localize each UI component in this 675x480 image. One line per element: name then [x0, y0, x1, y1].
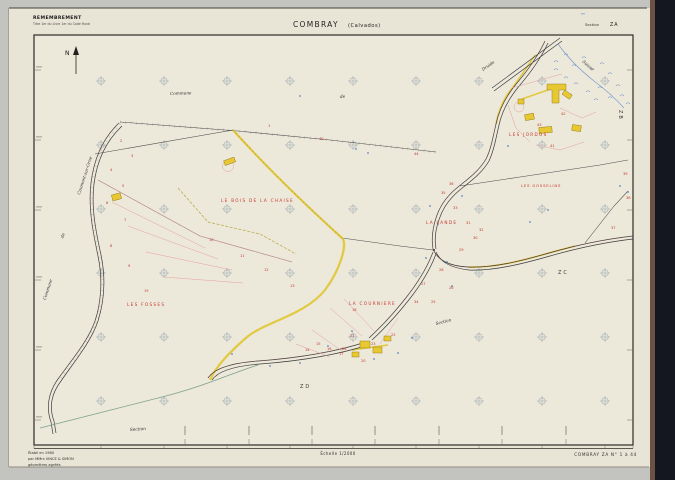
- doc-type-sublabel: Titre 1er du Livre 1er du Code Rural: [32, 22, 90, 26]
- parcel-number: 34: [414, 300, 419, 304]
- parcel-number: 13: [290, 284, 295, 288]
- parcel-number: 12: [264, 268, 269, 272]
- parcel-number: 5: [122, 184, 124, 188]
- parcel-number: 22: [391, 333, 396, 337]
- credit-line-1: Établi en 1980: [28, 450, 55, 455]
- blue-speck: [581, 13, 585, 14]
- parcel-number: 31: [466, 221, 471, 225]
- sheet-reference: COMBRAY ZA N° 1 à 44: [574, 452, 637, 457]
- credit-line-3: géomètres agréés: [28, 463, 61, 467]
- sheet-title-department: (Calvados): [348, 23, 381, 29]
- section-value: ZA: [610, 22, 619, 28]
- lieu-dit-la-lande: LA LANDE: [426, 220, 457, 225]
- map-svg: REMEMBREMENT Titre 1er du Livre 1er du C…: [0, 0, 675, 480]
- parcel-number: 18: [352, 308, 357, 312]
- parcel-number: 36: [449, 182, 454, 186]
- parcel-number: 35: [441, 191, 446, 195]
- parcel-number: 28: [439, 268, 444, 272]
- label-de-top: de: [340, 94, 346, 99]
- adjacent-section-zc: ZC: [558, 270, 569, 276]
- parcel-number: 39: [623, 172, 628, 176]
- parcel-number: 2: [120, 139, 122, 143]
- parcel-number: 29: [459, 248, 464, 252]
- parcel-number: 20: [361, 359, 366, 363]
- lieu-dit-bois-de-la-chaise: LE BOIS DE LA CHAISE: [221, 198, 294, 203]
- map-frame: [34, 35, 633, 445]
- parcel-number: 24: [342, 347, 347, 351]
- header: REMEMBREMENT Titre 1er du Livre 1er du C…: [32, 15, 619, 29]
- section-label: Section: [585, 22, 600, 27]
- parcel-number: 27: [421, 282, 426, 286]
- parcel-number: 44: [414, 152, 419, 156]
- parcel-number: 11: [240, 254, 245, 258]
- lieu-dit-les-jordos: LES JORDOS: [509, 132, 548, 137]
- adjacent-section-zb: ZB: [617, 110, 623, 121]
- scanned-sheet: REMEMBREMENT Titre 1er du Livre 1er du C…: [0, 0, 675, 480]
- credit-line-2: par MMrs VINCE & SIMON: [28, 457, 74, 461]
- lieu-dit-les-gosselins: LES GOSSELINS: [521, 183, 561, 188]
- parcel-number: 33: [453, 206, 458, 210]
- parcel-number: 1: [268, 124, 270, 128]
- sheet-title: COMBRAY: [293, 20, 339, 29]
- parcel-number: 23: [371, 342, 376, 346]
- parcel-number: 43: [537, 123, 542, 127]
- lieu-dit-la-courniere: LA COURNIERE: [349, 301, 396, 306]
- parcel-number: 3: [131, 154, 133, 158]
- parcel-number: 32: [479, 228, 484, 232]
- parcel-number: 17: [339, 352, 344, 356]
- parcel-number: 21: [350, 334, 355, 338]
- parcel-number: 16: [327, 347, 332, 351]
- parcel-number: 7: [124, 218, 126, 222]
- parcel-number: 37: [611, 226, 616, 230]
- parcel-number: 30: [473, 236, 478, 240]
- scale-label: Échelle 1/2000: [320, 451, 355, 456]
- label-commune-top: Commune: [170, 90, 192, 96]
- parcel-number: 14: [305, 348, 310, 352]
- parcel-number: 26: [449, 286, 454, 290]
- doc-type-label: REMEMBREMENT: [33, 15, 82, 21]
- parcel-number: 38: [626, 196, 631, 200]
- parcel-number: 25: [431, 300, 436, 304]
- lieu-dit-les-fosses: LES FOSSES: [127, 302, 165, 307]
- parcel-number: 40: [319, 137, 324, 141]
- parcel-number: 42: [561, 112, 566, 116]
- north-label: N: [65, 50, 70, 57]
- adjacent-section-zd: ZD: [300, 384, 311, 390]
- footer: Établi en 1980 par MMrs VINCE & SIMON gé…: [28, 450, 637, 467]
- parcel-number: 41: [550, 144, 555, 148]
- parcel-number: 10: [209, 238, 214, 242]
- parcel-number: 19: [144, 289, 149, 293]
- parcel-number: 15: [316, 342, 321, 346]
